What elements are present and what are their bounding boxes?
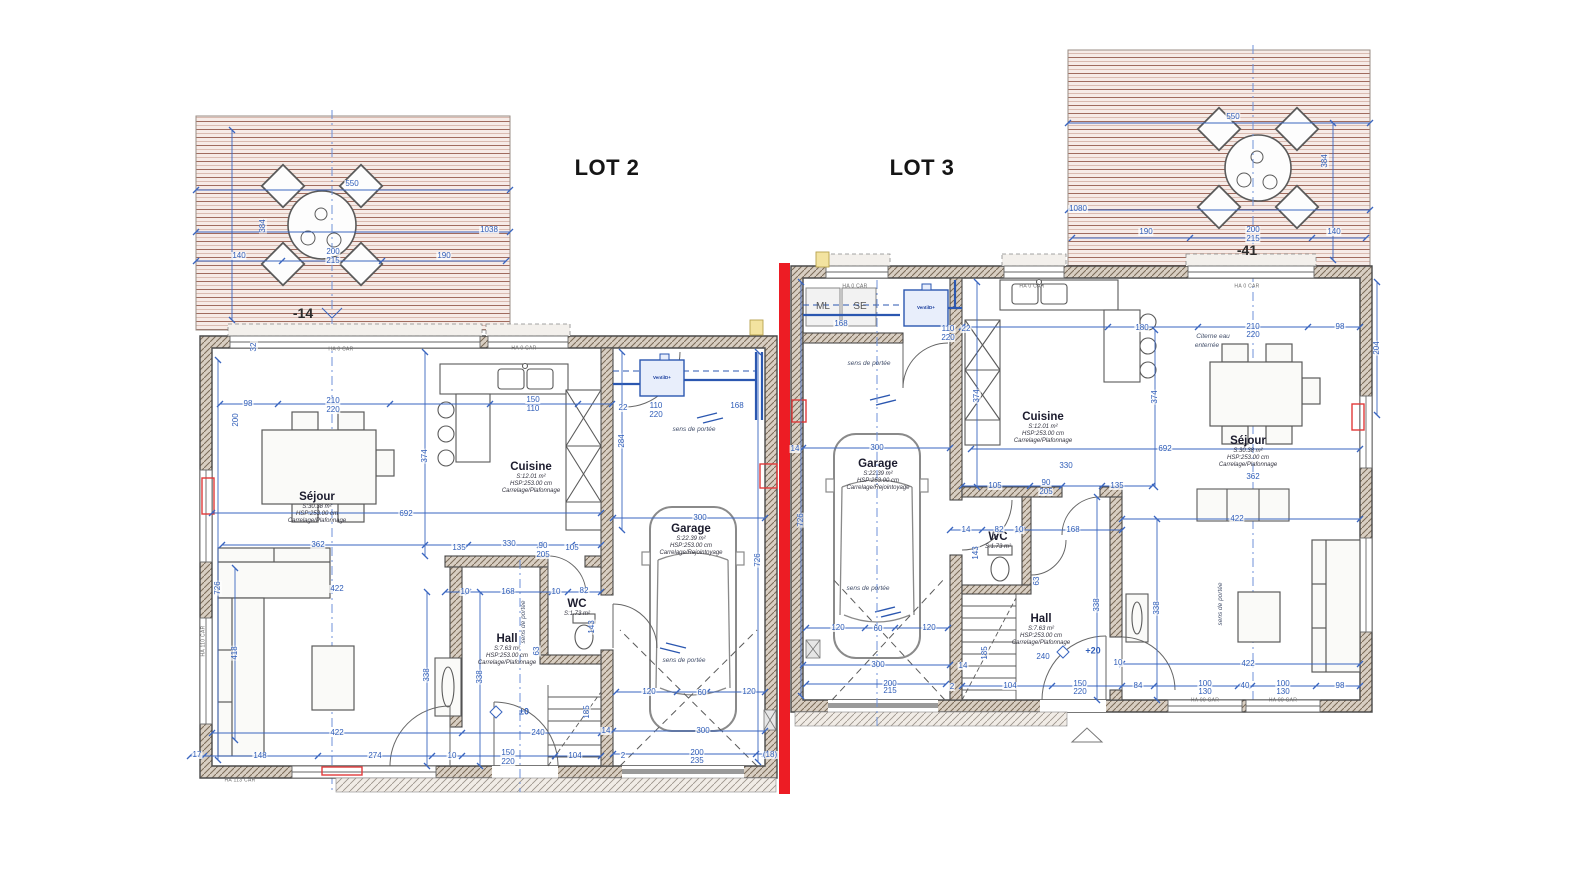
lot2-entry-opening bbox=[492, 766, 558, 778]
lot3-buffet bbox=[1126, 594, 1148, 642]
lot3-label: LOT 3 bbox=[890, 155, 955, 181]
lot3-wc-toilet bbox=[988, 546, 1012, 581]
lot3-stairs bbox=[962, 594, 1016, 700]
shutter-box bbox=[486, 324, 570, 336]
floor-plan-canvas: LOT 2 LOT 3 Séjour S:30.38 m² HSP:253.00… bbox=[0, 0, 1585, 887]
lot2-garage-door bbox=[622, 769, 744, 774]
lot2-wc-toilet bbox=[573, 614, 595, 649]
lot3-doors bbox=[903, 343, 1175, 700]
lot2-sofa bbox=[218, 548, 354, 756]
lot2-kitchen bbox=[438, 364, 601, 531]
house-lot3 bbox=[791, 252, 1377, 742]
lot3-laundry bbox=[806, 288, 876, 326]
lot2-coffee-table bbox=[312, 646, 354, 710]
shutter-box bbox=[228, 324, 482, 336]
lot2-car bbox=[642, 507, 744, 731]
lot2-label: LOT 2 bbox=[575, 155, 640, 181]
lot3-garage-door bbox=[828, 703, 938, 708]
doorbell-symbol bbox=[750, 320, 763, 335]
lot3-ventil-nub bbox=[922, 284, 931, 290]
lot2-ventil-nub bbox=[660, 354, 669, 360]
lot3-sofa bbox=[1238, 540, 1360, 672]
lot2-ventil-unit bbox=[640, 360, 684, 396]
lot3-ventil-unit bbox=[904, 290, 948, 326]
shutter-box bbox=[824, 254, 890, 266]
lot2-stairs bbox=[548, 685, 601, 766]
doorbell-symbol bbox=[816, 252, 829, 267]
shutter-box bbox=[1002, 254, 1066, 266]
level-diamond bbox=[490, 706, 502, 718]
lot3-dining-table bbox=[1210, 344, 1320, 444]
lot2-dining-table bbox=[262, 412, 394, 522]
shutter-box bbox=[1186, 254, 1316, 266]
lot3-porch bbox=[795, 712, 1067, 726]
lot3-step-marker bbox=[1072, 728, 1102, 742]
plan-drawing bbox=[0, 0, 1585, 887]
lot3-sideboard bbox=[1197, 489, 1289, 521]
lot3-coffee-table bbox=[1238, 592, 1280, 642]
house-lot2 bbox=[190, 320, 777, 792]
lot2-porch bbox=[336, 778, 776, 792]
lot-separation-line bbox=[779, 263, 790, 794]
lot3-entry-opening bbox=[1040, 700, 1106, 712]
lot3-kitchen bbox=[965, 280, 1156, 446]
